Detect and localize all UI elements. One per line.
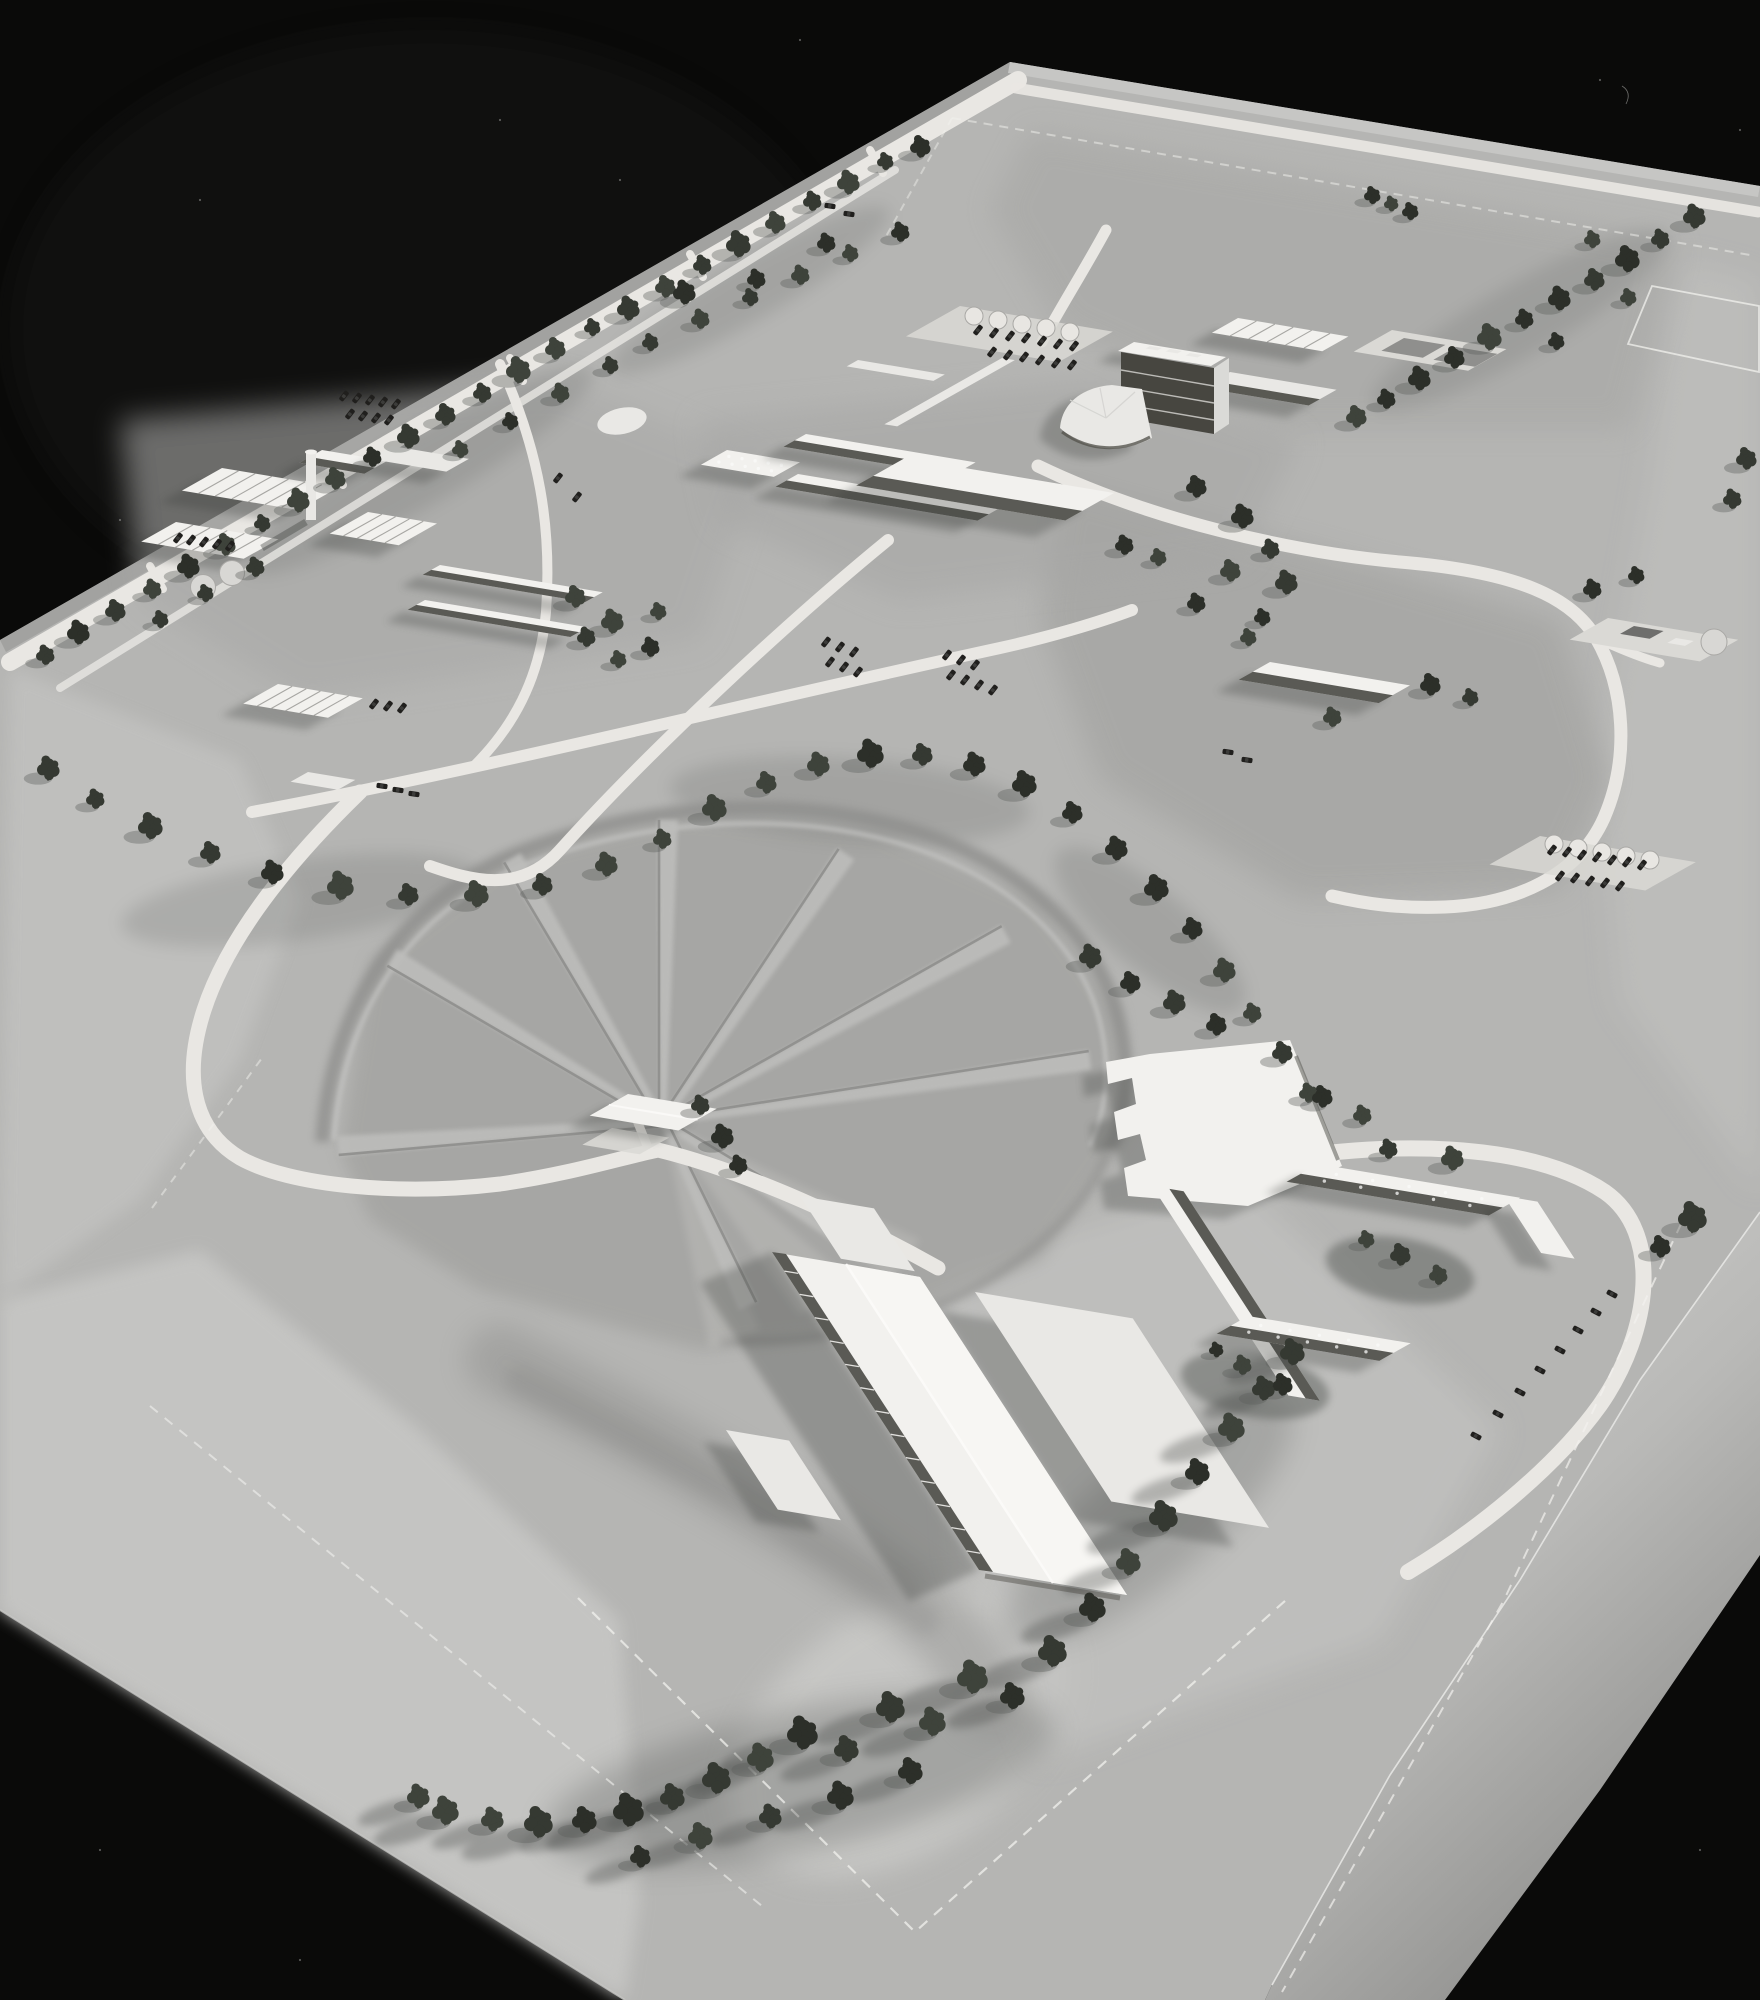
roof-vent-dot <box>740 457 743 460</box>
dust-speck <box>499 119 501 121</box>
parking-island <box>1037 319 1055 337</box>
roof-vent-dot <box>770 469 773 472</box>
roof-vent-dot <box>1318 1334 1321 1337</box>
roof-vent-dot <box>780 464 783 467</box>
roof-vent-dot <box>1359 1185 1362 1188</box>
model-scene-svg <box>0 0 1760 2000</box>
roof-vent-dot <box>1335 1173 1338 1176</box>
roof-vent-dot <box>1432 1198 1435 1201</box>
roof-vent-dot <box>1407 1185 1410 1188</box>
roof-vent-dot <box>1323 1179 1326 1182</box>
roof-vent-dot <box>753 459 756 462</box>
roof-vent-dot <box>1288 1329 1291 1332</box>
roof-vent-dot <box>757 467 760 470</box>
roof-vent-dot <box>1335 1345 1338 1348</box>
dust-speck <box>799 39 801 41</box>
parking-island <box>1013 315 1031 333</box>
dust-speck <box>199 199 201 201</box>
roof-vent-dot <box>1259 1324 1262 1327</box>
parking-island <box>989 311 1007 329</box>
roof-vent-dot <box>767 461 770 464</box>
building <box>305 450 317 455</box>
roof-vent-dot <box>1347 1338 1350 1341</box>
dust-speck <box>99 1849 101 1851</box>
parking-island <box>965 307 983 325</box>
roof-vent-dot <box>1247 1330 1250 1333</box>
dust-speck <box>299 1959 301 1961</box>
roof-vent-dot <box>1364 1350 1367 1353</box>
roof-vent-dot <box>1444 1191 1447 1194</box>
parking-island <box>1061 323 1079 341</box>
roof-vent-dot <box>730 463 733 466</box>
roof-vent-dot <box>1395 1192 1398 1195</box>
dust-speck <box>1699 1849 1701 1851</box>
building <box>1214 358 1229 434</box>
dust-speck <box>1739 129 1741 131</box>
dust-speck <box>119 519 121 521</box>
roof-vent-dot <box>727 455 730 458</box>
roof-vent-dot <box>1468 1204 1471 1207</box>
roof-vent-dot <box>717 460 720 463</box>
architectural-model-photo <box>0 0 1760 2000</box>
dust-speck <box>619 179 621 181</box>
dust-speck <box>1599 79 1601 81</box>
roof-vent-dot <box>1480 1197 1483 1200</box>
storage-tank <box>1701 629 1727 655</box>
roof-vent-dot <box>1376 1343 1379 1346</box>
roof-vent-dot <box>1276 1335 1279 1338</box>
roof-vent-dot <box>1371 1179 1374 1182</box>
roof-vent-dot <box>743 465 746 468</box>
roof-vent-dot <box>1306 1340 1309 1343</box>
